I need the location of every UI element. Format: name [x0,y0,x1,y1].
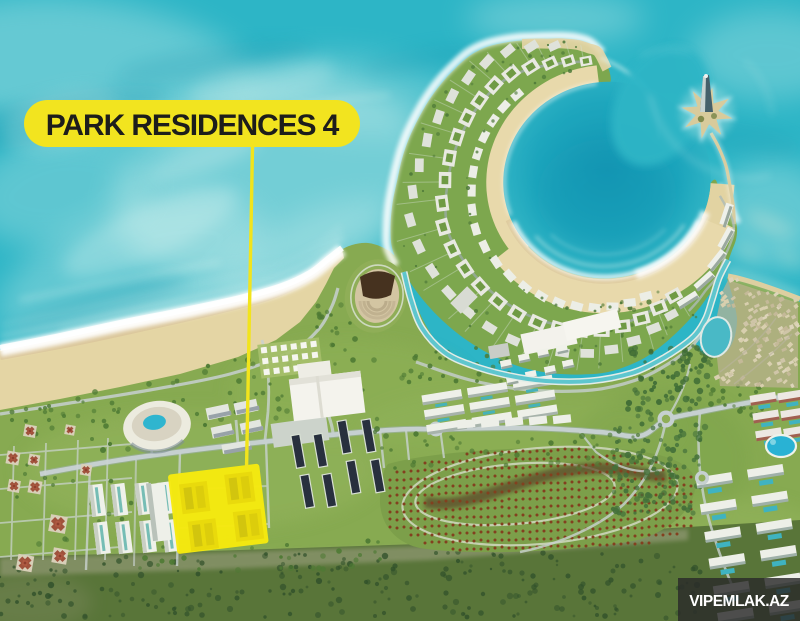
svg-text:VIPEMLAK.AZ: VIPEMLAK.AZ [689,593,790,610]
svg-text:PARK RESIDENCES 4: PARK RESIDENCES 4 [46,109,340,142]
